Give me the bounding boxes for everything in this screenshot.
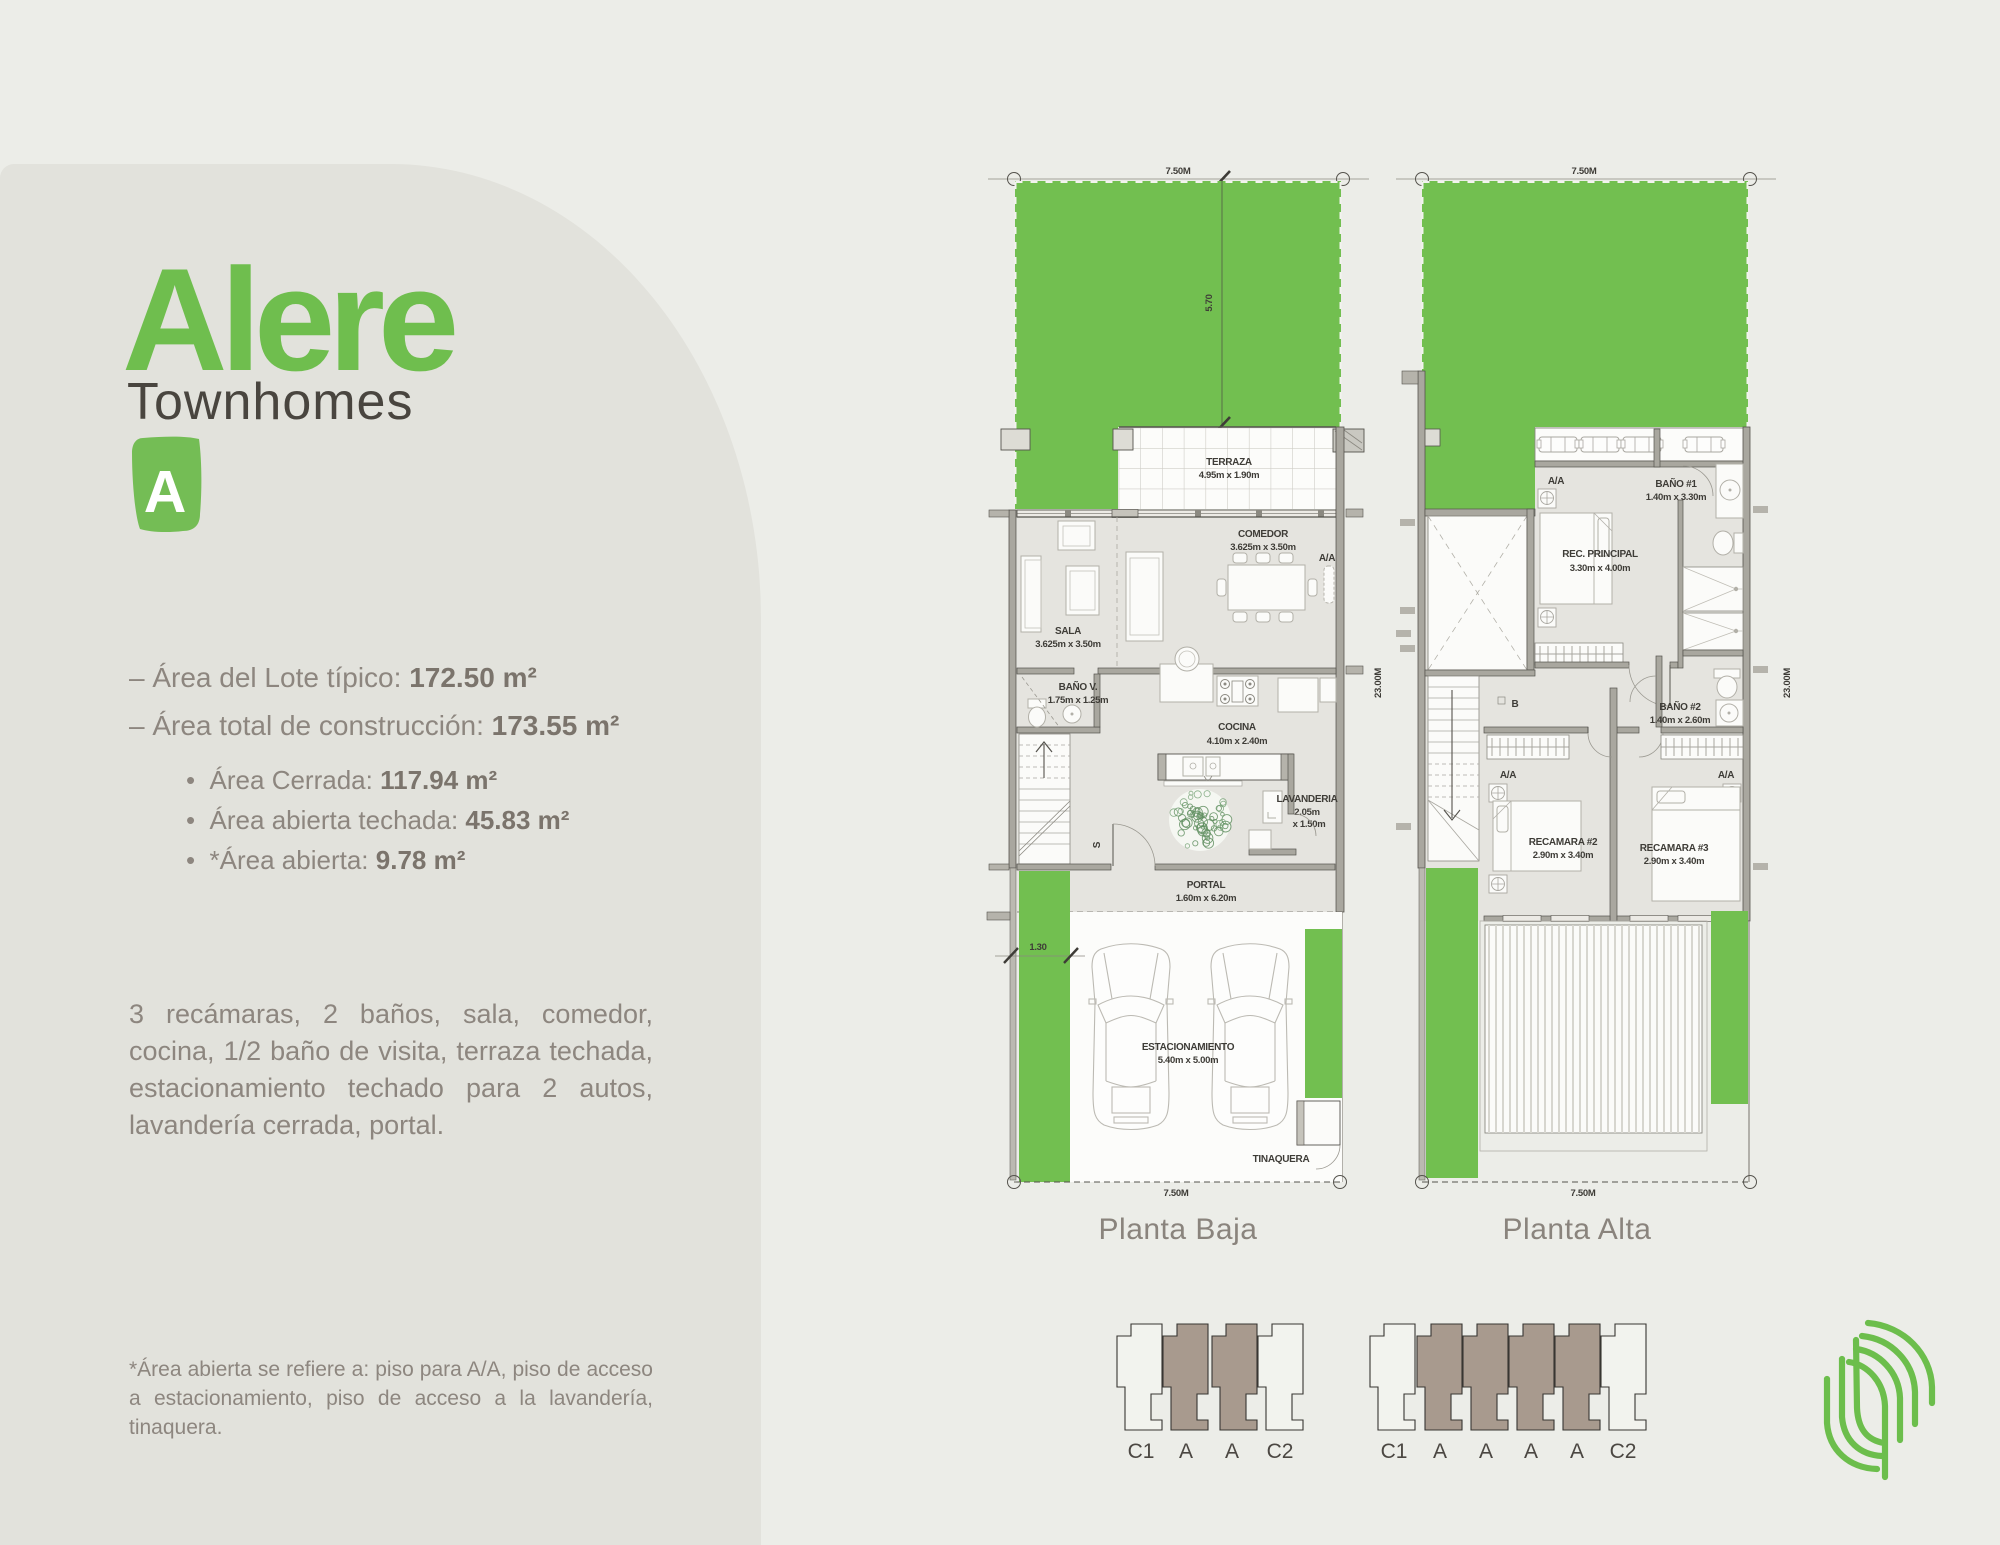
svg-text:A: A (1179, 1440, 1193, 1463)
svg-text:1.30: 1.30 (1029, 942, 1046, 953)
svg-text:1.40m x 2.60m: 1.40m x 2.60m (1650, 715, 1711, 726)
svg-text:COMEDOR: COMEDOR (1238, 529, 1289, 540)
svg-text:1.75m x 1.25m: 1.75m x 1.25m (1048, 695, 1109, 706)
svg-text:TINAQUERA: TINAQUERA (1253, 1154, 1310, 1165)
svg-text:2.90m x 3.40m: 2.90m x 3.40m (1533, 850, 1594, 861)
svg-text:LAVANDERIA: LAVANDERIA (1276, 794, 1337, 805)
svg-text:1.60m x 6.20m: 1.60m x 6.20m (1176, 893, 1237, 904)
svg-text:S: S (1092, 841, 1103, 848)
svg-text:7.50M: 7.50M (1571, 1188, 1596, 1199)
svg-text:ESTACIONAMIENTO: ESTACIONAMIENTO (1142, 1042, 1235, 1053)
svg-text:4.10m x 2.40m: 4.10m x 2.40m (1207, 736, 1268, 747)
svg-text:RECAMARA #3: RECAMARA #3 (1640, 843, 1709, 854)
svg-text:3.30m x 4.00m: 3.30m x 4.00m (1570, 563, 1631, 574)
svg-text:7.50M: 7.50M (1164, 1188, 1189, 1199)
svg-text:A: A (1524, 1440, 1538, 1463)
svg-text:Planta Baja: Planta Baja (1099, 1213, 1258, 1246)
svg-text:23.00M: 23.00M (1782, 668, 1793, 698)
svg-text:2.05m: 2.05m (1294, 807, 1319, 818)
svg-text:RECAMARA #2: RECAMARA #2 (1529, 837, 1598, 848)
svg-text:A: A (1225, 1440, 1239, 1463)
svg-text:SALA: SALA (1055, 626, 1081, 637)
svg-text:A: A (1570, 1440, 1584, 1463)
svg-text:Planta Alta: Planta Alta (1503, 1213, 1652, 1246)
svg-text:BAÑO #1: BAÑO #1 (1655, 477, 1697, 490)
svg-text:B: B (1512, 699, 1519, 710)
svg-text:7.50M: 7.50M (1166, 166, 1191, 177)
svg-text:A: A (1433, 1440, 1447, 1463)
svg-text:5.40m x 5.00m: 5.40m x 5.00m (1158, 1055, 1219, 1066)
svg-text:7.50M: 7.50M (1572, 166, 1597, 177)
svg-text:23.00M: 23.00M (1373, 668, 1384, 698)
svg-text:BAÑO #2: BAÑO #2 (1659, 700, 1701, 713)
svg-text:C2: C2 (1267, 1440, 1294, 1463)
svg-text:C1: C1 (1128, 1440, 1155, 1463)
svg-text:2.90m x 3.40m: 2.90m x 3.40m (1644, 856, 1705, 867)
svg-text:3.625m x 3.50m: 3.625m x 3.50m (1230, 542, 1296, 553)
svg-text:BAÑO V.: BAÑO V. (1059, 680, 1098, 693)
svg-text:A/A: A/A (1500, 770, 1516, 781)
svg-text:A/A: A/A (1548, 476, 1564, 487)
svg-text:x 1.50m: x 1.50m (1293, 819, 1326, 830)
svg-text:5.70: 5.70 (1204, 294, 1215, 311)
svg-text:4.95m x 1.90m: 4.95m x 1.90m (1199, 470, 1260, 481)
svg-text:PORTAL: PORTAL (1187, 880, 1226, 891)
svg-text:TERRAZA: TERRAZA (1206, 457, 1252, 468)
svg-text:1.40m x 3.30m: 1.40m x 3.30m (1646, 492, 1707, 503)
svg-text:C1: C1 (1381, 1440, 1408, 1463)
svg-text:A/A: A/A (1718, 770, 1734, 781)
svg-text:A: A (1479, 1440, 1493, 1463)
svg-text:A/A: A/A (1319, 553, 1335, 564)
svg-text:COCINA: COCINA (1218, 722, 1256, 733)
svg-text:3.625m x 3.50m: 3.625m x 3.50m (1035, 639, 1101, 650)
svg-text:REC. PRINCIPAL: REC. PRINCIPAL (1562, 549, 1638, 560)
svg-text:C2: C2 (1610, 1440, 1637, 1463)
